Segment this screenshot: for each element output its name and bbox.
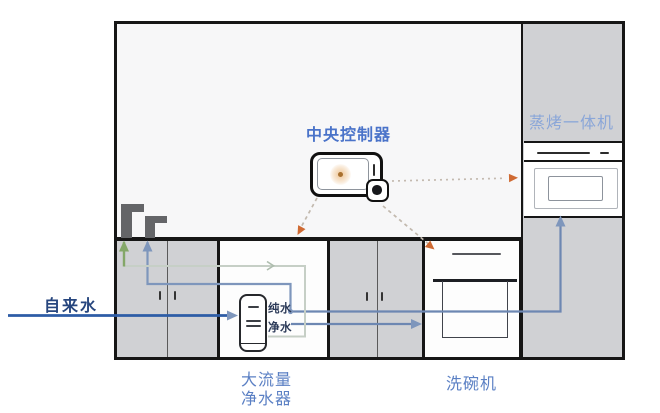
tap-water-label: 自来水 bbox=[44, 292, 98, 316]
water-flow-lines bbox=[0, 0, 660, 413]
faucet-supply-arrow bbox=[143, 241, 153, 252]
pure-water-line bbox=[291, 227, 561, 312]
purified-faucet-arrow bbox=[119, 241, 129, 252]
pure-water-label: 纯水 bbox=[268, 300, 292, 316]
purifier-label-line2: 净水器 bbox=[241, 390, 292, 409]
controller-signal-line-purifier bbox=[299, 198, 317, 231]
dishwasher-label: 洗碗机 bbox=[446, 370, 497, 394]
steam-oven-label: 蒸烤一体机 bbox=[529, 109, 614, 133]
kitchen-water-system-diagram: 中央控制器 蒸烤一体机 自来水 大流量 净水器 洗碗机 纯水 净水 bbox=[0, 0, 660, 413]
purifier-label: 大流量 净水器 bbox=[241, 371, 292, 409]
pure-water-arrow bbox=[556, 216, 566, 227]
controller-signal-line-oven bbox=[392, 178, 506, 181]
controller-signal-line-dishwasher bbox=[383, 206, 431, 246]
tap-water-arrow bbox=[227, 311, 238, 321]
signal-arrow-orange bbox=[294, 225, 306, 237]
filtered-water-arrow bbox=[411, 319, 422, 329]
filtered-water-label: 净水 bbox=[268, 319, 292, 335]
signal-arrow-orange bbox=[509, 174, 518, 183]
purifier-label-line1: 大流量 bbox=[241, 371, 292, 390]
central-controller-label: 中央控制器 bbox=[306, 121, 391, 145]
